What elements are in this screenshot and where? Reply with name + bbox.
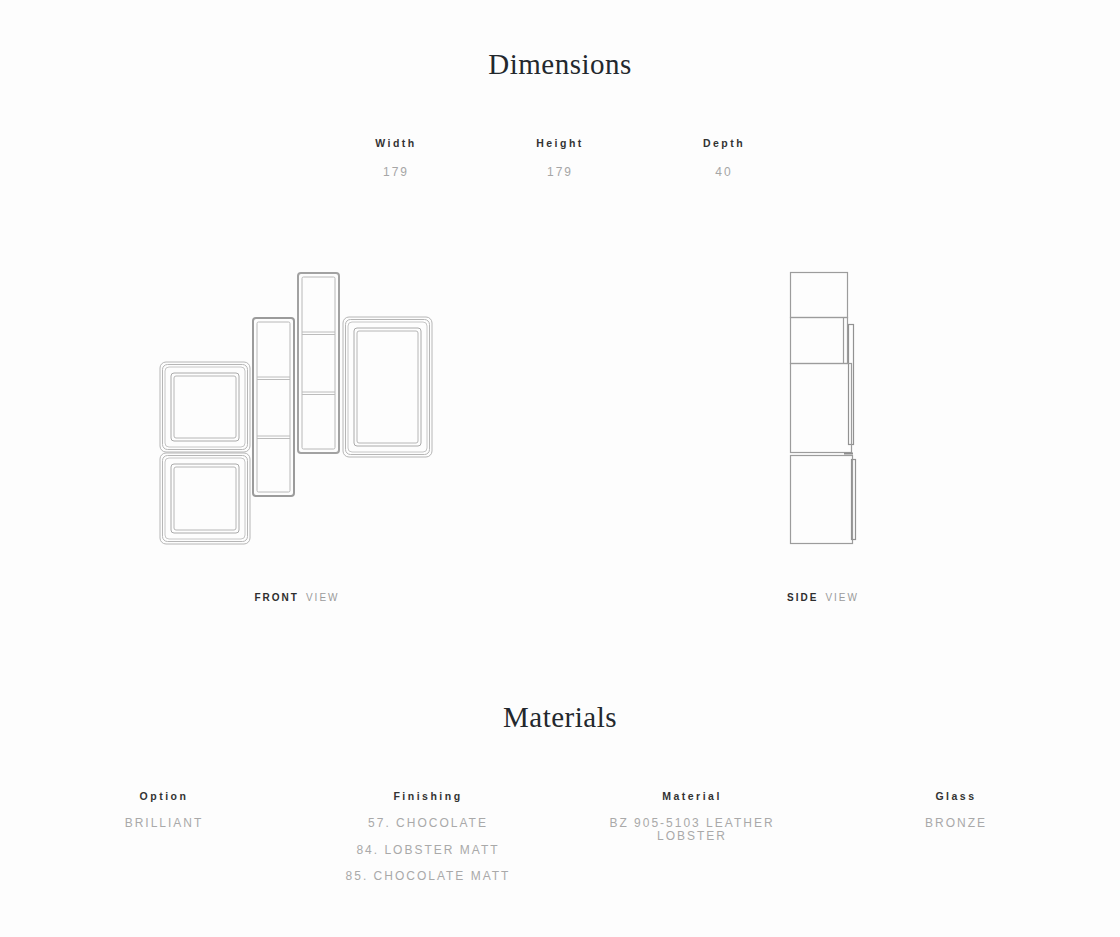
dimension-height-value: 179 (478, 165, 642, 179)
materials-glass-value: BRONZE (859, 817, 1054, 830)
materials-table: Option BRILLIANT Finishing 57. CHOCOLATE… (32, 790, 1088, 883)
materials-material-column: Material BZ 905-5103 LEATHER LOBSTER (560, 790, 824, 883)
front-view-label-bold: FRONT (254, 592, 298, 603)
front-view-drawing (150, 262, 444, 557)
materials-material-label: Material (560, 790, 824, 802)
materials-material-value: BZ 905-5103 LEATHER LOBSTER (600, 817, 785, 843)
dimension-height-label: Height (478, 137, 642, 149)
front-view-label-light: VIEW (306, 592, 340, 603)
side-view-label-bold: SIDE (787, 592, 818, 603)
materials-finishing-column: Finishing 57. CHOCOLATE 84. LOBSTER MATT… (296, 790, 560, 883)
materials-glass-column: Glass BRONZE (824, 790, 1088, 883)
dimension-height: Height 179 (478, 137, 642, 179)
dimension-width: Width 179 (314, 137, 478, 179)
product-spec-page: Dimensions Width 179 Height 179 Depth 40 (0, 0, 1120, 937)
materials-glass-label: Glass (824, 790, 1088, 802)
dimension-width-value: 179 (314, 165, 478, 179)
dimensions-table: Width 179 Height 179 Depth 40 (314, 137, 806, 179)
side-view-label: SIDE VIEW (763, 592, 883, 603)
dimension-depth-label: Depth (642, 137, 806, 149)
dimension-depth-value: 40 (642, 165, 806, 179)
side-view-label-light: VIEW (825, 592, 859, 603)
dimension-depth: Depth 40 (642, 137, 806, 179)
materials-option-value: BRILLIANT (67, 817, 262, 830)
dimensions-section-title: Dimensions (0, 48, 1120, 81)
materials-finishing-value: 57. CHOCOLATE (331, 817, 526, 830)
materials-finishing-value: 85. CHOCOLATE MATT (331, 870, 526, 883)
front-view-label: FRONT VIEW (150, 592, 444, 603)
dimension-width-label: Width (314, 137, 478, 149)
materials-section-title: Materials (0, 701, 1120, 734)
materials-option-column: Option BRILLIANT (32, 790, 296, 883)
materials-option-label: Option (32, 790, 296, 802)
materials-finishing-value: 84. LOBSTER MATT (331, 844, 526, 857)
materials-finishing-label: Finishing (296, 790, 560, 802)
side-view-drawing (785, 262, 865, 552)
